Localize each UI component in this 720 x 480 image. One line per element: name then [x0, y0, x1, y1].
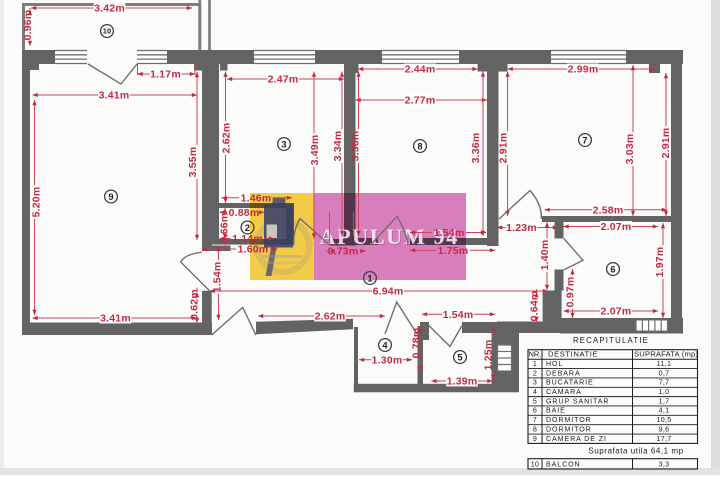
- svg-text:17,7: 17,7: [656, 435, 671, 443]
- svg-text:1.30m: 1.30m: [372, 354, 403, 366]
- svg-text:2.77m: 2.77m: [405, 95, 436, 107]
- svg-text:1.25m: 1.25m: [483, 340, 495, 371]
- svg-text:6: 6: [533, 407, 537, 415]
- svg-text:1.39m: 1.39m: [447, 376, 478, 388]
- svg-text:BALCON: BALCON: [546, 461, 581, 469]
- svg-text:1.97m: 1.97m: [654, 247, 666, 278]
- svg-text:3.36m: 3.36m: [350, 131, 362, 162]
- svg-text:4: 4: [382, 340, 388, 350]
- svg-text:2.91m: 2.91m: [498, 133, 510, 164]
- svg-text:DEBARA: DEBARA: [546, 369, 581, 377]
- svg-text:1.17m: 1.17m: [150, 69, 181, 81]
- svg-text:2: 2: [533, 369, 537, 377]
- svg-text:1.75m: 1.75m: [438, 245, 469, 257]
- svg-text:3.41m: 3.41m: [99, 90, 130, 102]
- svg-text:0.66m: 0.66m: [219, 213, 231, 244]
- svg-text:2.91m: 2.91m: [660, 128, 672, 159]
- svg-text:10: 10: [531, 461, 540, 469]
- svg-text:CAMERA DE ZI: CAMERA DE ZI: [546, 435, 607, 443]
- svg-text:1: 1: [367, 273, 372, 283]
- svg-text:Suprafata utila 64,1 mp: Suprafata utila 64,1 mp: [588, 447, 683, 456]
- svg-text:HOL: HOL: [546, 360, 563, 368]
- svg-text:BUCATARIE: BUCATARIE: [546, 379, 594, 387]
- svg-text:3.55m: 3.55m: [187, 147, 199, 178]
- svg-text:RECAPITULATIE: RECAPITULATIE: [573, 336, 649, 345]
- svg-text:1.60m: 1.60m: [238, 244, 269, 256]
- svg-text:2.44m: 2.44m: [405, 64, 436, 76]
- svg-text:0.97m: 0.97m: [565, 277, 577, 308]
- svg-text:9: 9: [108, 192, 113, 202]
- svg-text:0.88m: 0.88m: [229, 207, 260, 219]
- svg-text:6.94m: 6.94m: [373, 286, 404, 298]
- svg-text:1.23m: 1.23m: [506, 222, 537, 234]
- svg-text:1: 1: [533, 360, 537, 368]
- svg-text:1.46m: 1.46m: [241, 192, 272, 204]
- svg-text:3: 3: [533, 379, 537, 387]
- svg-text:10: 10: [103, 27, 111, 36]
- svg-text:0,7: 0,7: [659, 369, 670, 377]
- svg-text:2.47m: 2.47m: [268, 74, 299, 86]
- svg-text:2.99m: 2.99m: [568, 64, 599, 76]
- svg-text:0.62m: 0.62m: [189, 289, 201, 320]
- svg-text:DORMITOR: DORMITOR: [546, 416, 592, 424]
- svg-text:8: 8: [533, 425, 537, 433]
- svg-text:2.62m: 2.62m: [221, 123, 233, 154]
- svg-text:7: 7: [533, 416, 537, 424]
- svg-text:1.54m: 1.54m: [443, 309, 474, 321]
- svg-text:1.54m: 1.54m: [434, 227, 465, 239]
- svg-text:2.58m: 2.58m: [593, 204, 624, 216]
- svg-text:1.54m: 1.54m: [212, 262, 224, 293]
- svg-text:3.42m: 3.42m: [94, 3, 125, 15]
- svg-text:3.49m: 3.49m: [309, 135, 321, 166]
- svg-text:2.07m: 2.07m: [601, 221, 632, 233]
- svg-text:3.36m: 3.36m: [470, 133, 482, 164]
- svg-text:NR.: NR.: [528, 350, 541, 359]
- svg-text:0.64m: 0.64m: [529, 291, 541, 322]
- svg-text:1.40m: 1.40m: [539, 240, 551, 271]
- svg-text:5: 5: [457, 352, 462, 362]
- svg-text:3.41m: 3.41m: [100, 313, 131, 325]
- svg-text:SUPRAFATA (mp): SUPRAFATA (mp): [634, 350, 698, 359]
- svg-text:5: 5: [533, 397, 537, 405]
- svg-text:7: 7: [582, 135, 587, 145]
- svg-text:8: 8: [417, 141, 422, 151]
- svg-text:BAIE: BAIE: [546, 407, 566, 415]
- svg-text:0.78m: 0.78m: [411, 328, 423, 359]
- svg-text:CAMARA: CAMARA: [546, 388, 582, 396]
- svg-text:4,1: 4,1: [659, 407, 670, 415]
- svg-text:3: 3: [281, 139, 286, 149]
- svg-text:5.20m: 5.20m: [31, 187, 43, 218]
- svg-text:9: 9: [533, 435, 537, 443]
- svg-text:11,1: 11,1: [657, 360, 671, 368]
- svg-text:10,5: 10,5: [656, 416, 671, 424]
- svg-text:2.07m: 2.07m: [601, 306, 632, 318]
- svg-text:DORMITOR: DORMITOR: [546, 425, 592, 433]
- svg-text:0.96m: 0.96m: [22, 10, 34, 41]
- svg-text:2.62m: 2.62m: [315, 311, 346, 323]
- svg-text:4: 4: [533, 388, 537, 396]
- svg-text:6: 6: [610, 264, 615, 274]
- svg-text:3.03m: 3.03m: [624, 134, 636, 165]
- svg-text:3.34m: 3.34m: [332, 131, 344, 162]
- svg-text:1,0: 1,0: [659, 388, 670, 396]
- svg-text:GRUP SANITAR: GRUP SANITAR: [546, 397, 609, 405]
- svg-text:9,6: 9,6: [659, 425, 670, 433]
- svg-text:1,7: 1,7: [659, 397, 670, 405]
- svg-text:3,3: 3,3: [659, 461, 670, 469]
- svg-text:DESTINATIE: DESTINATIE: [548, 350, 598, 359]
- svg-text:2: 2: [245, 223, 250, 233]
- svg-text:7,7: 7,7: [659, 379, 670, 387]
- svg-text:0.73m: 0.73m: [328, 246, 359, 258]
